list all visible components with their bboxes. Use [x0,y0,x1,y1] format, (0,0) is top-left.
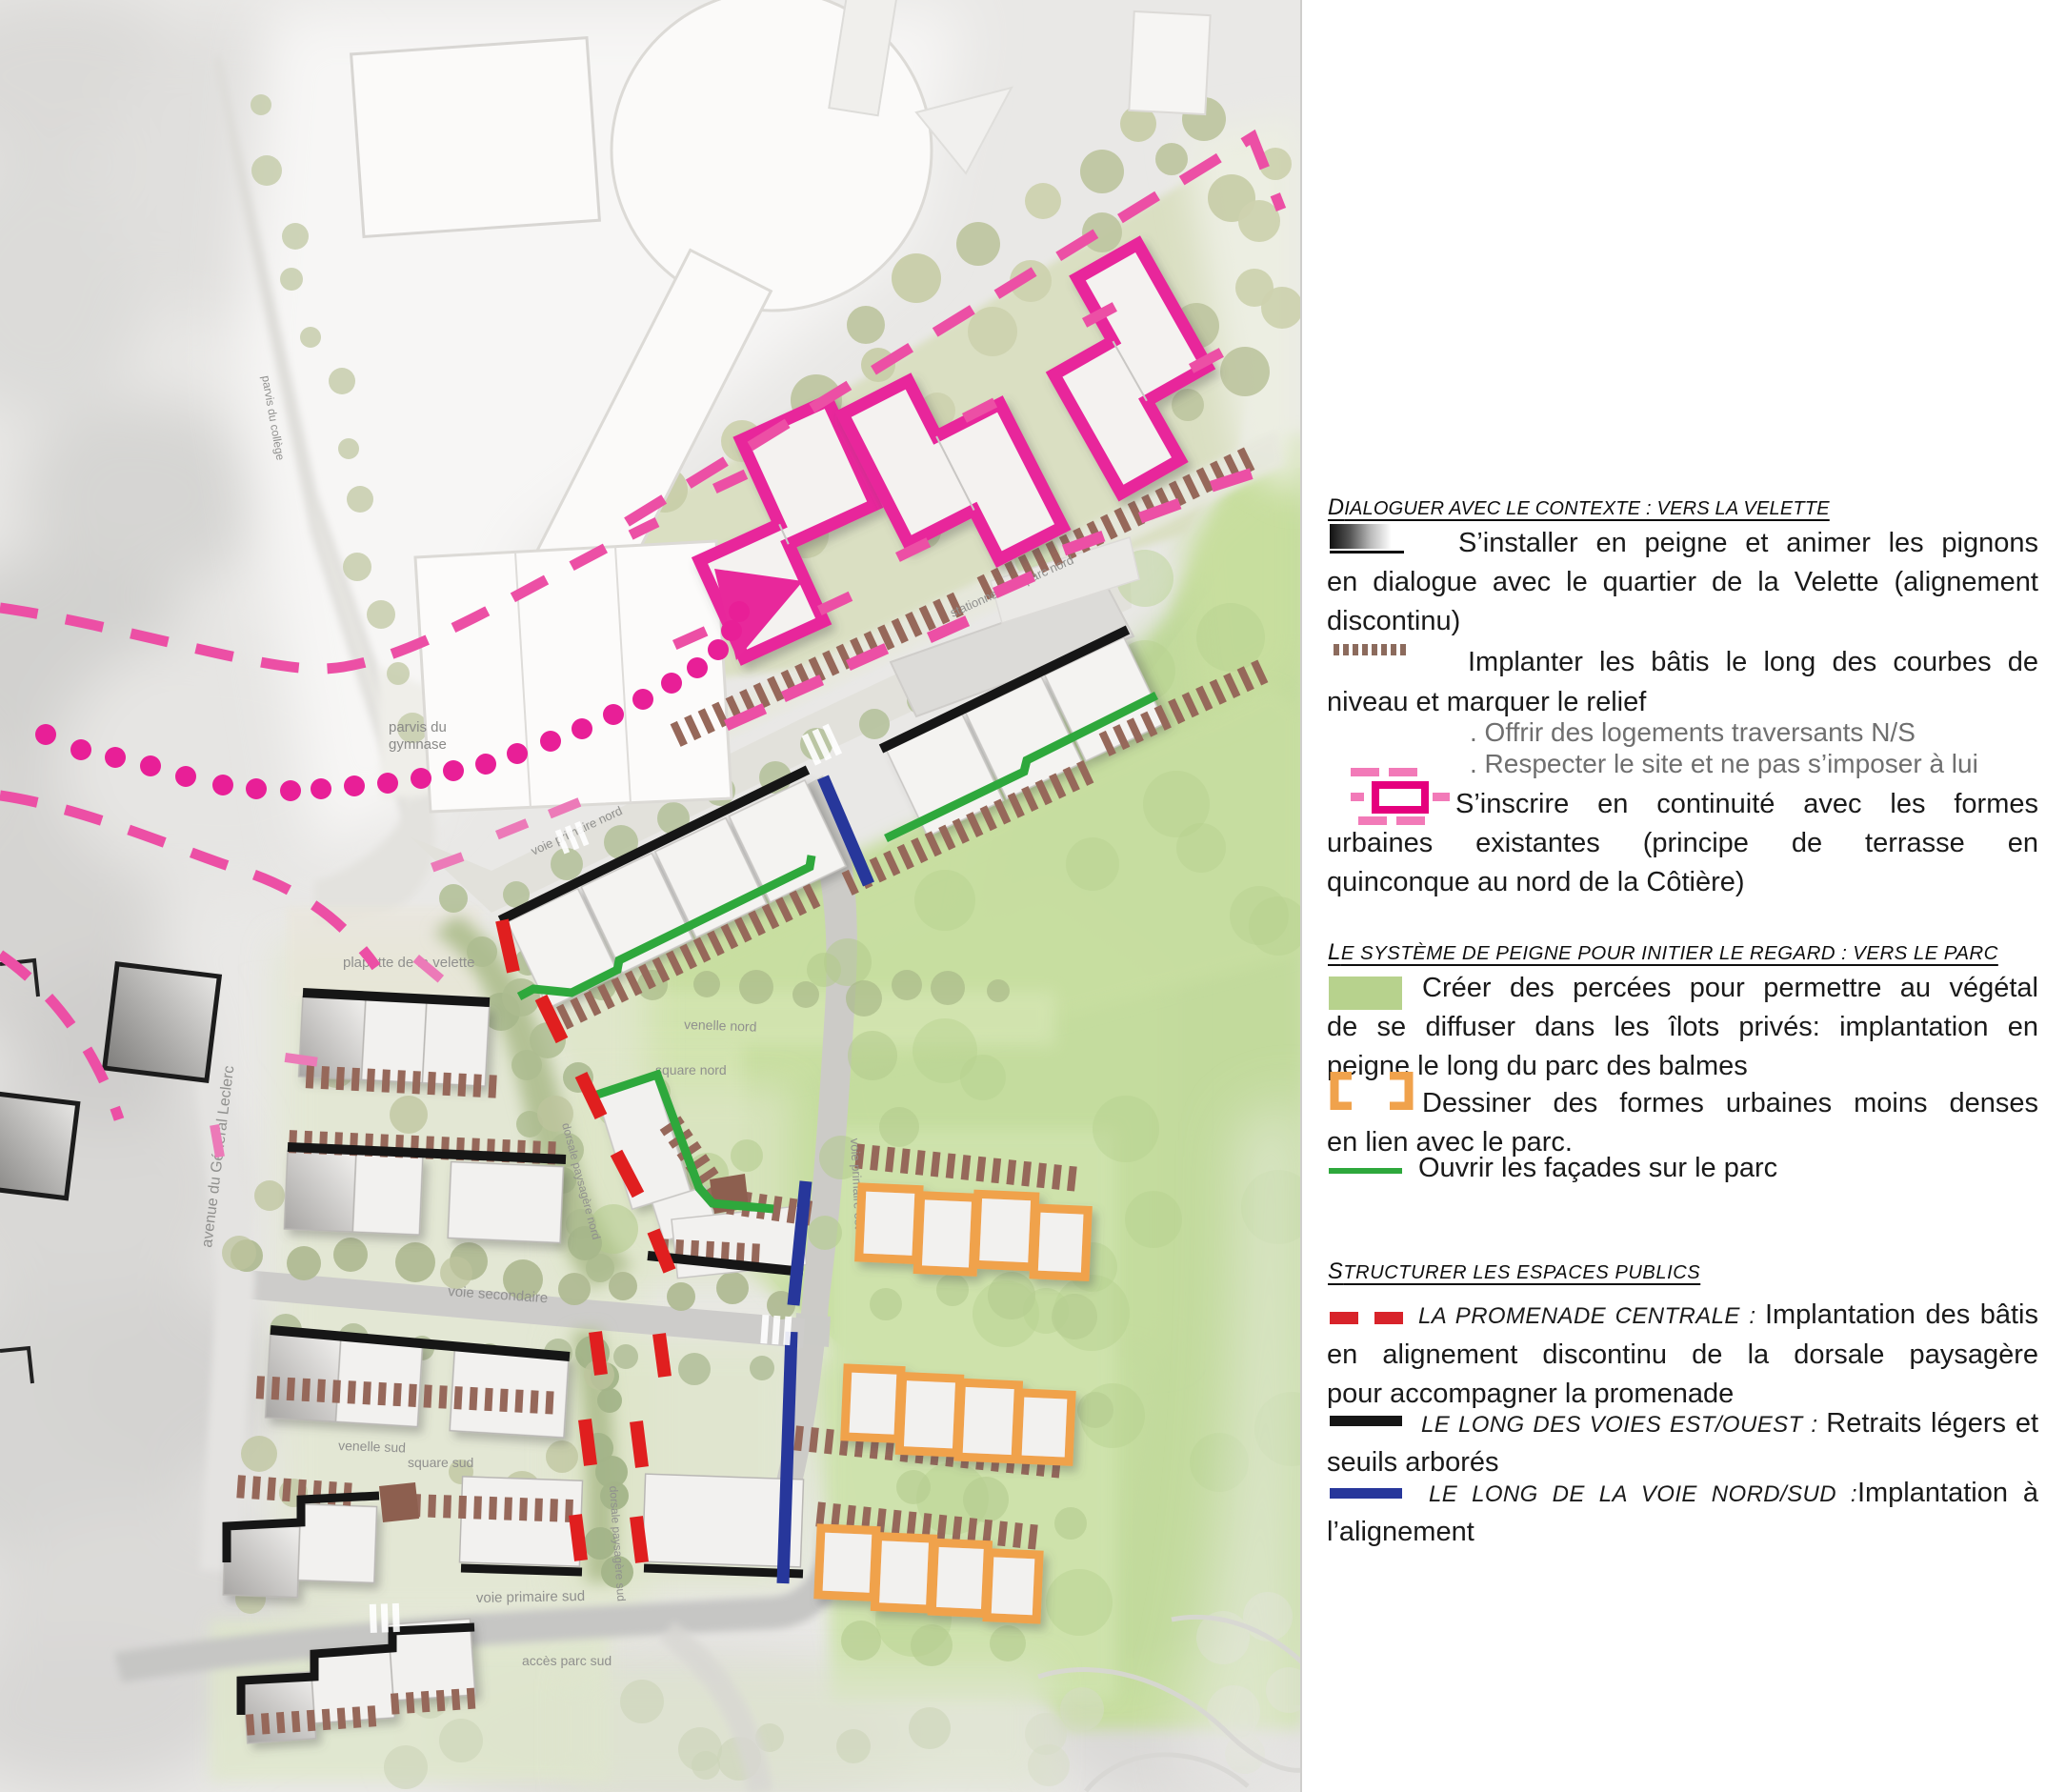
svg-text:voie primaire sud: voie primaire sud [476,1588,585,1606]
svg-text:accès parc sud: accès parc sud [522,1653,612,1668]
svg-text:square nord: square nord [655,1062,727,1077]
svg-text:square sud: square sud [408,1455,473,1470]
svg-text:gymnase: gymnase [389,736,447,753]
svg-text:venelle sud: venelle sud [338,1438,406,1455]
svg-text:venelle nord: venelle nord [684,1017,757,1035]
svg-text:parvis du: parvis du [389,719,447,735]
